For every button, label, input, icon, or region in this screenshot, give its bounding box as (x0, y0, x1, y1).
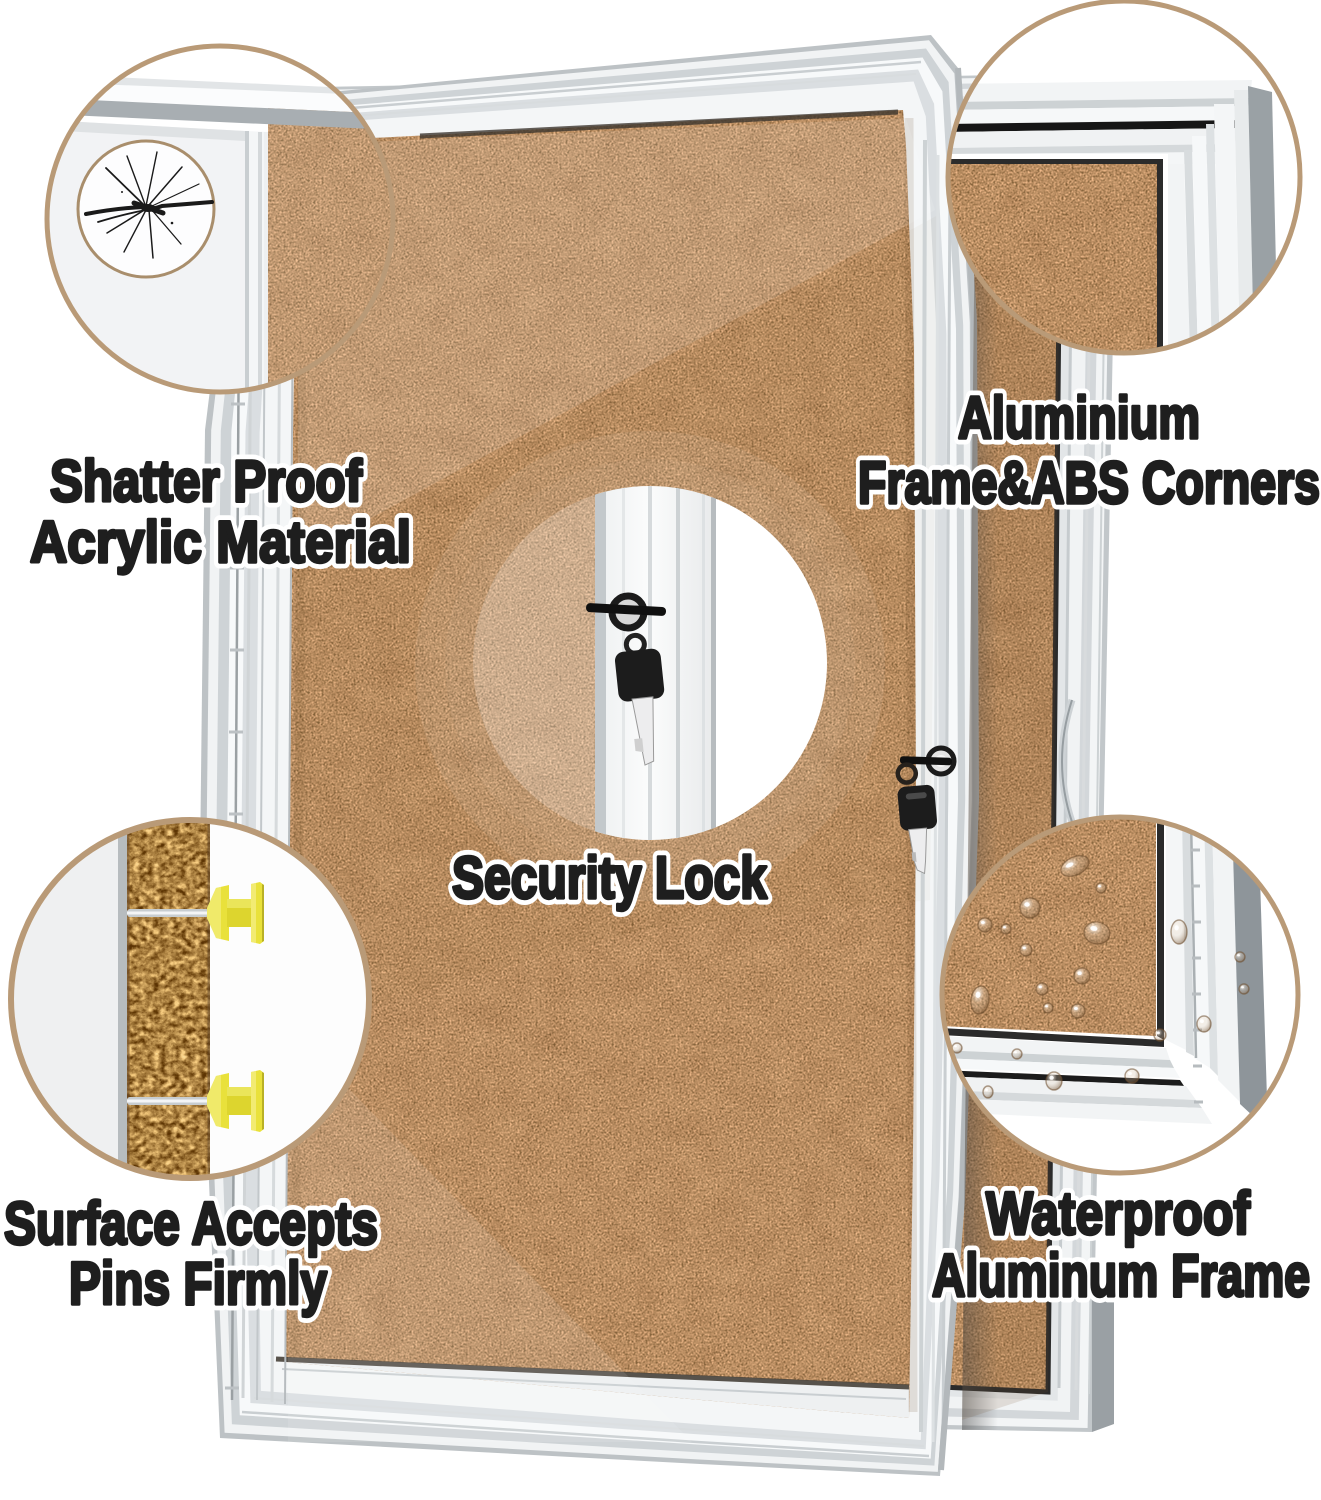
svg-text:Pins Firmly: Pins Firmly (69, 1250, 328, 1317)
svg-text:Acrylic Material: Acrylic Material (30, 510, 411, 575)
svg-text:Frame&ABS Corners: Frame&ABS Corners (858, 450, 1320, 516)
svg-text:Security Lock: Security Lock (452, 845, 767, 911)
svg-text:Waterproof: Waterproof (986, 1180, 1251, 1247)
svg-text:Surface Accepts: Surface Accepts (4, 1190, 378, 1257)
svg-text:Aluminum Frame: Aluminum Frame (932, 1242, 1310, 1309)
svg-text:Shatter Proof: Shatter Proof (50, 449, 363, 514)
svg-text:Aluminium: Aluminium (958, 385, 1200, 451)
